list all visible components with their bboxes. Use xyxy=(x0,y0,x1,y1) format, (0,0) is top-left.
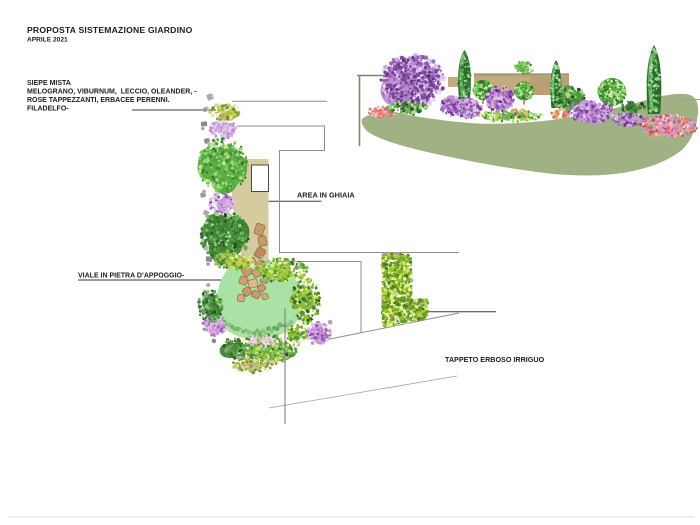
svg-text:APRILE 2021: APRILE 2021 xyxy=(27,37,68,44)
svg-text:MELOGRANO, VIBURNUM, LECCIO,: MELOGRANO, VIBURNUM, LECCIO, OLEANDER, - xyxy=(27,89,197,96)
svg-text:SIEPE MISTA: SIEPE MISTA xyxy=(27,80,71,87)
svg-text:TAPPETO ERBOSO IRRIGUO: TAPPETO ERBOSO IRRIGUO xyxy=(445,355,545,364)
svg-text:FILADELFO-: FILADELFO- xyxy=(27,106,69,113)
svg-text:AREA IN GHIAIA: AREA IN GHIAIA xyxy=(297,191,355,200)
svg-text:ROSE TAPPEZZANTI, ERBACEE PERE: ROSE TAPPEZZANTI, ERBACEE PERENNI. xyxy=(27,97,170,104)
svg-text:PROPOSTA SISTEMAZIONE GIARDINO: PROPOSTA SISTEMAZIONE GIARDINO xyxy=(27,25,193,35)
svg-text:VIALE IN PIETRA D’APPOGGIO-: VIALE IN PIETRA D’APPOGGIO- xyxy=(78,273,185,280)
